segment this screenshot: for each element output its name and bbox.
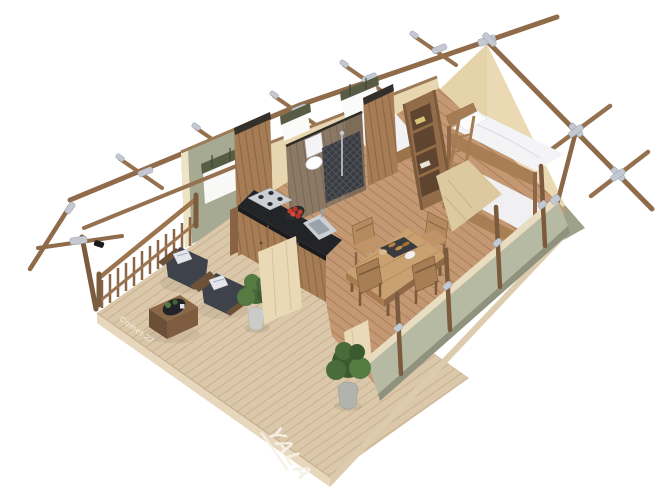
tent-3d-render: Comet 27 YALA <box>0 0 667 500</box>
corner-post <box>82 237 96 309</box>
cup <box>180 304 185 309</box>
render-canvas: Comet 27 YALA <box>0 0 667 500</box>
shower-head <box>340 131 344 135</box>
steel-connector <box>64 201 76 214</box>
light-fixture <box>93 240 104 249</box>
